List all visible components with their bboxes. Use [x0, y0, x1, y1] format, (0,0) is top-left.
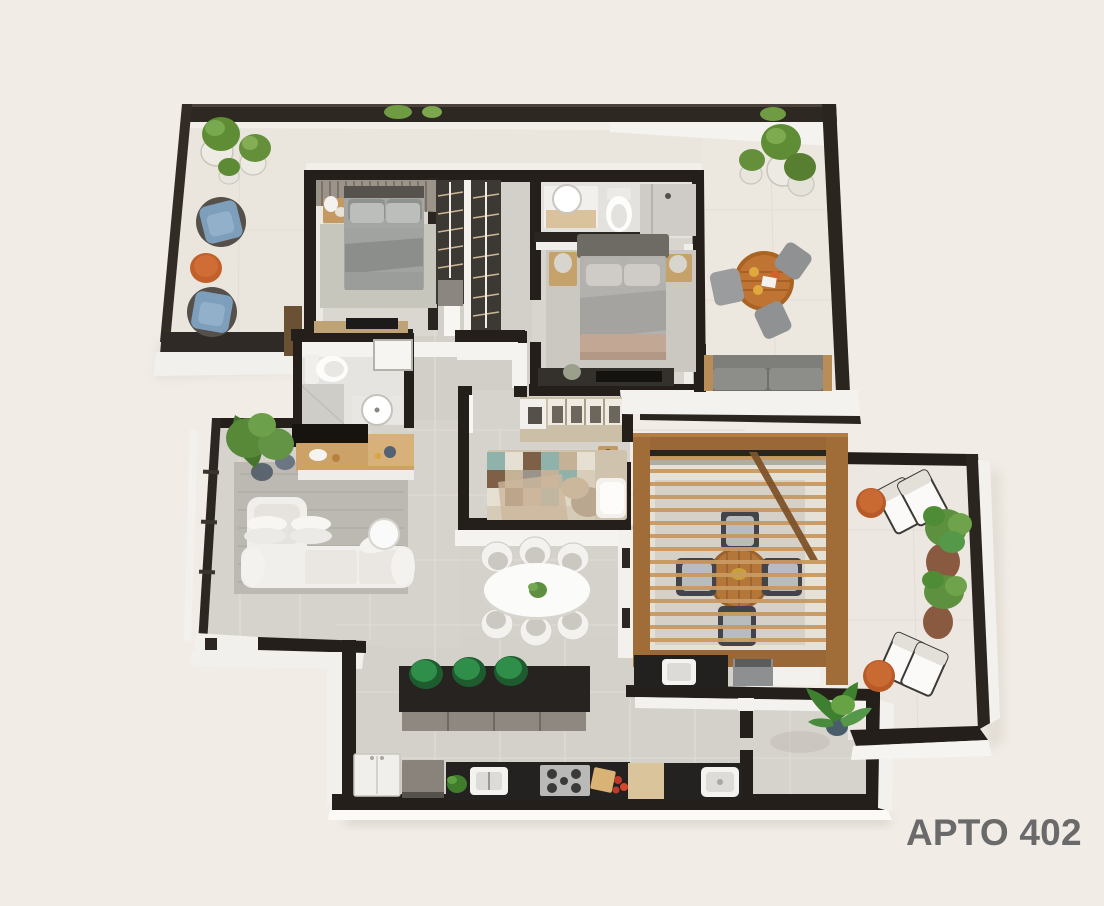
svg-text:APTO 402: APTO 402: [906, 812, 1082, 853]
